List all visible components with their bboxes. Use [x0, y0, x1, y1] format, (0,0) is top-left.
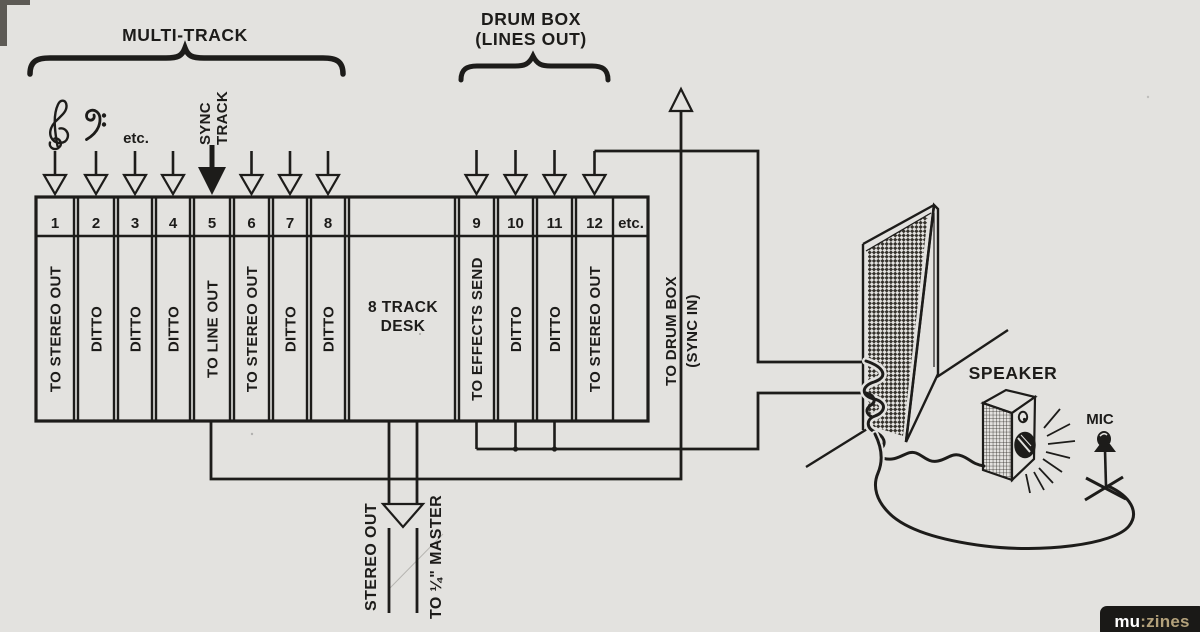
up-arrow: [670, 89, 692, 111]
multitrack-brace: [30, 48, 343, 74]
sync-track-arrow: [198, 145, 226, 195]
input-arrow: [317, 151, 339, 194]
drumbox-label-line1: DRUM BOX: [481, 9, 581, 29]
mic-label: MIC: [1086, 411, 1114, 428]
drum-sync-label-line2: (SYNC IN): [684, 294, 701, 368]
channel-label: DITTO: [508, 306, 525, 352]
channel-label: DITTO: [321, 306, 338, 352]
logo-prefix: mu: [1114, 612, 1140, 631]
stereo-out-label: STEREO OUT: [363, 503, 380, 611]
paper-speck: [251, 433, 253, 435]
bass-clef-icon: [87, 110, 107, 139]
mic-stand: [1105, 450, 1106, 486]
desk-title-line2: DESK: [381, 318, 426, 335]
paper-speck: [1147, 96, 1149, 98]
input-arrow: [162, 151, 184, 194]
mic-return-wire: [595, 151, 867, 362]
scan-artifacts: [0, 0, 1149, 588]
speaker-cabinet: [983, 390, 1075, 493]
drum-input-arrow: [544, 150, 566, 194]
input-arrow: [124, 151, 146, 194]
input-arrow: [279, 151, 301, 194]
live-room: SPEAKER MIC: [806, 205, 1133, 549]
channel-label: DITTO: [547, 306, 564, 352]
drumbox-brace: [461, 56, 608, 80]
channel-number: 9: [472, 215, 480, 232]
down-arrow: [383, 504, 423, 527]
svg-text:mu:zines: mu:zines: [1114, 612, 1189, 631]
drum-input-arrow: [466, 150, 488, 194]
stereo-master-wire: [383, 421, 423, 613]
input-arrow: [241, 151, 263, 194]
input-arrow: [85, 151, 107, 194]
channel-number: 3: [131, 215, 139, 232]
channel-number: 10: [507, 215, 524, 232]
acoustic-screen: [863, 205, 938, 442]
drum-sync-label-line1: TO DRUM BOX: [663, 276, 680, 386]
channel-label: DITTO: [89, 306, 106, 352]
desk-title-line1: 8 TRACK: [368, 299, 438, 316]
speaker-label: SPEAKER: [969, 363, 1058, 383]
drum-input-arrow: [505, 150, 527, 194]
channel-number: 11: [547, 215, 563, 232]
multitrack-section: MULTI-TRACK: [30, 25, 343, 74]
channel-number: 2: [92, 215, 100, 232]
drumbox-label-line2: (LINES OUT): [475, 29, 587, 49]
header-etc-label: etc.: [618, 215, 644, 232]
channel-label: TO STEREO OUT: [48, 266, 65, 392]
channel-label: TO STEREO OUT: [244, 266, 261, 392]
channel-label: TO EFFECTS SEND: [469, 257, 486, 400]
return-input-arrow: [584, 151, 606, 194]
channel-number: 7: [286, 215, 294, 232]
channel-label: TO STEREO OUT: [587, 266, 604, 392]
track-input-arrows: [44, 145, 606, 195]
mixing-desk: 1 2 3 4 5 6 7 8 9 10 11 12 etc. TO STERE…: [36, 197, 648, 421]
master-label: TO ¼" MASTER: [428, 495, 445, 619]
tweeter: [1019, 412, 1027, 422]
routing-wires: TO DRUM BOX (SYNC IN) STEREO OUT TO ¼" M…: [211, 89, 866, 619]
channel-label: TO LINE OUT: [205, 280, 222, 378]
sync-track-label-line1: SYNC: [197, 102, 214, 145]
channel-number: 6: [247, 215, 255, 232]
clefs-etc-label: etc.: [123, 130, 149, 147]
wire-junction: [552, 446, 557, 451]
drumbox-section: DRUM BOX (LINES OUT): [461, 9, 608, 80]
logo-suffix: :zines: [1140, 612, 1189, 631]
channel-label: DITTO: [166, 306, 183, 352]
channel-number: 4: [169, 215, 178, 232]
channel-number: 5: [208, 215, 216, 232]
diagram-page: MULTI-TRACK DRUM BOX (LINES OUT) etc. SY…: [0, 0, 1200, 632]
sync-track-label-line2: TRACK: [214, 91, 231, 145]
channel-label: DITTO: [128, 306, 145, 352]
muzines-logo: mu:zines: [1100, 606, 1200, 632]
channel-number: 1: [51, 215, 59, 232]
floor-line: [806, 426, 872, 467]
recording-setup-diagram: MULTI-TRACK DRUM BOX (LINES OUT) etc. SY…: [0, 0, 1200, 632]
channel-number: 8: [324, 215, 332, 232]
input-arrow: [44, 151, 66, 194]
channel-number: 12: [586, 215, 603, 232]
channel-label: DITTO: [283, 306, 300, 352]
track-source-symbols: etc. SYNC TRACK: [50, 91, 231, 149]
page-corner-mark: [0, 0, 30, 46]
wire-junction: [513, 446, 518, 451]
speaker-grille: [983, 403, 1012, 480]
treble-clef-icon: [50, 101, 68, 149]
